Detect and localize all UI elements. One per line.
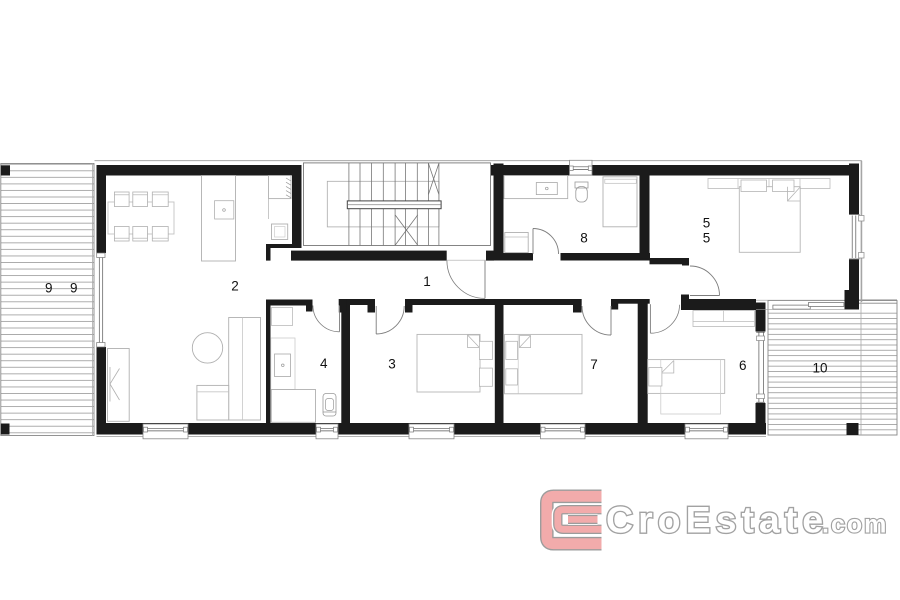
svg-text:3: 3 — [388, 357, 396, 372]
svg-text:9: 9 — [70, 281, 78, 296]
svg-text:10: 10 — [812, 361, 827, 376]
svg-text:5: 5 — [703, 231, 711, 246]
svg-text:1: 1 — [423, 274, 431, 289]
svg-text:7: 7 — [590, 357, 598, 372]
svg-text:8: 8 — [580, 231, 588, 246]
svg-text:CroEstate: CroEstate — [606, 499, 828, 541]
svg-text:6: 6 — [739, 358, 747, 373]
svg-text:5: 5 — [703, 216, 711, 231]
svg-text:2: 2 — [231, 278, 239, 293]
svg-text:.com: .com — [822, 511, 888, 539]
svg-text:9: 9 — [45, 281, 53, 296]
svg-text:4: 4 — [320, 356, 328, 371]
